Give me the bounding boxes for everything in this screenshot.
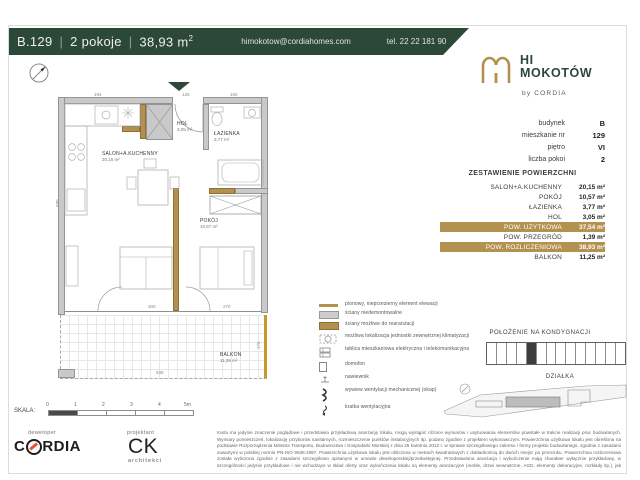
- room-label-balkon: BALKON11,25 m²: [220, 352, 242, 363]
- developer-label: deweloper: [28, 430, 56, 436]
- scale-bar-segments: [48, 410, 194, 416]
- area-row: BALKON11,25 m²: [440, 252, 605, 262]
- hi-mokotow-monogram-icon: [478, 53, 514, 85]
- dimension-label: 638: [156, 370, 164, 375]
- cordia-o-mark-icon: [26, 439, 42, 455]
- floor-location-strip: [486, 342, 626, 365]
- electrical-board-icon: [316, 347, 345, 358]
- unit-area: 38,93 m2: [139, 34, 193, 49]
- area-row-billing-total: POW. ROZLICZENIOWA38,93 m²: [440, 242, 605, 252]
- vent-grille-icon: [316, 405, 345, 416]
- site-plan-map: [440, 380, 632, 425]
- room-label-hol: HOL3,05 m²: [177, 121, 192, 132]
- room-count: 2 pokoje: [70, 34, 122, 49]
- cordia-logo: CRDIA: [14, 438, 81, 455]
- brand-byline: by CORDIA: [522, 90, 567, 97]
- area-row: POW. PRZEGRÓD1,39 m²: [440, 232, 605, 242]
- dimension-label: 270: [223, 304, 231, 309]
- mech-vent-icon: [316, 388, 345, 402]
- room-label-lazienka: ŁAZIENKA3,77 m²: [214, 131, 240, 142]
- area-row: POKÓJ10,57 m²: [440, 192, 605, 202]
- header-bar: B.129 | 2 pokoje | 38,93 m2 himokotow@co…: [9, 28, 469, 55]
- floor-location-title: POŁOŻENIE NA KONDYGNACJI: [460, 330, 620, 336]
- detail-row: mieszkanie nr129: [455, 129, 605, 141]
- contact-email: himokotow@cordiahomes.com: [241, 37, 351, 46]
- floor-plan: SALON+A.KUCHENNY20,15 m² HOL3,05 m² ŁAZI…: [58, 97, 268, 380]
- room-label-pokoj: POKÓJ10,57 m²: [200, 218, 218, 229]
- area-table: SALON+A.KUCHENNY20,15 m² POKÓJ10,57 m² Ł…: [440, 182, 605, 262]
- detail-row: liczba pokoi2: [455, 153, 605, 165]
- brand-name-line2: MOKOTÓW: [520, 67, 592, 80]
- area-row-usable-total: POW. UŻYTKOWA37,54 m²: [440, 222, 605, 232]
- unit-details: budynekB mieszkanie nr129 piętroVI liczb…: [455, 117, 605, 165]
- dimension-label: 175: [256, 341, 261, 349]
- flat-card-page: B.129 | 2 pokoje | 38,93 m2 himokotow@co…: [0, 0, 640, 480]
- area-row: SALON+A.KUCHENNY20,15 m²: [440, 182, 605, 192]
- scale-bar: SKALA: 0 1 2 3 4 5m: [14, 402, 204, 418]
- intercom-icon: [316, 362, 345, 372]
- separator: |: [129, 34, 133, 49]
- room-label-salon: SALON+A.KUCHENNY20,15 m²: [102, 151, 158, 162]
- dimension-label: 590: [55, 199, 60, 207]
- dimension-label: 126: [182, 92, 190, 97]
- area-table-title: ZESTAWIENIE POWIERZCHNI: [440, 170, 605, 177]
- detail-row: budynekB: [455, 117, 605, 129]
- unit-number: B.129: [17, 34, 52, 49]
- separator: |: [59, 34, 63, 49]
- dimension-label: 300: [148, 304, 156, 309]
- legend-item: pionowy, nieprzezierny element elewacji: [316, 301, 474, 307]
- highlighted-unit: [527, 343, 537, 364]
- legend-item: ściany niedemontowalne: [316, 310, 474, 319]
- legend-item: domofon: [316, 361, 474, 372]
- gold-wall-icon: [316, 322, 345, 330]
- ac-unit-icon: [316, 334, 345, 344]
- dimension-label: 194: [94, 92, 102, 97]
- legend-item: tablica mieszkaniowa elektryczna i telek…: [316, 346, 474, 358]
- legal-disclaimer: Karta ma jedynie znaczenie poglądowe i p…: [217, 430, 621, 470]
- legend-item: ściany możliwe do rearanżacji: [316, 321, 474, 330]
- area-row: ŁAZIENKA3,77 m²: [440, 202, 605, 212]
- area-row: HOL3,05 m²: [440, 212, 605, 222]
- ck-architekci-logo: CK: [128, 435, 158, 459]
- contact-phone: tel. 22 22 181 90: [387, 37, 447, 46]
- legend-item: możliwa lokalizacja jednostki zewnętrzne…: [316, 333, 474, 344]
- entrance-marker-icon: [168, 82, 190, 91]
- gold-line-icon: [316, 302, 345, 307]
- gray-wall-icon: [316, 311, 345, 319]
- air-inlet-icon: [316, 375, 345, 384]
- ck-architekci-sub: architekci: [128, 458, 162, 464]
- dimension-label: 160: [230, 92, 238, 97]
- compass-icon: [28, 62, 50, 89]
- detail-row: piętroVI: [455, 141, 605, 153]
